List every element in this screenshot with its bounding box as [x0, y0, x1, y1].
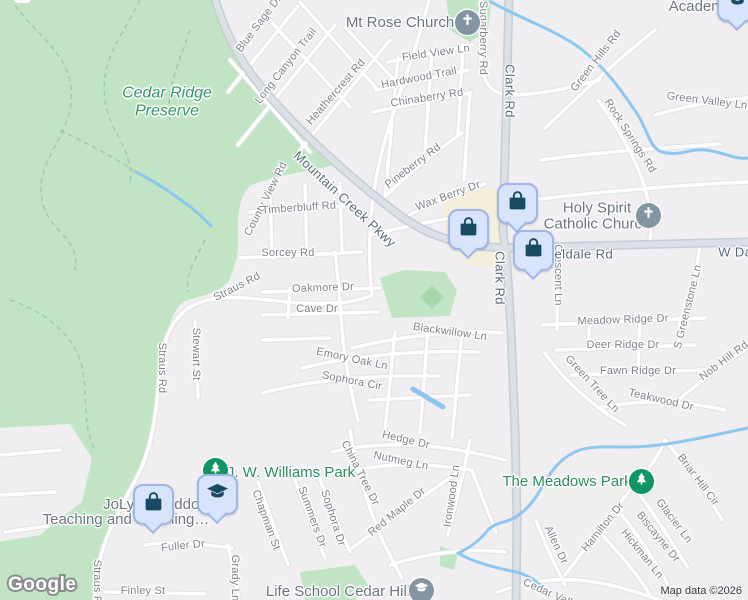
park-area [380, 270, 457, 318]
map-canvas [0, 0, 748, 600]
cross-icon [460, 12, 475, 32]
google-logo[interactable]: Google [8, 574, 76, 596]
map-attribution: Map data ©2026 [661, 585, 743, 597]
graduation-cap-icon [414, 580, 429, 600]
map-viewport[interactable]: Blue Sage DrLong Canyon TrailHeathercres… [0, 0, 748, 600]
clipped-pin [13, 0, 32, 4]
cross-icon [641, 205, 656, 225]
tree-icon [634, 471, 649, 491]
